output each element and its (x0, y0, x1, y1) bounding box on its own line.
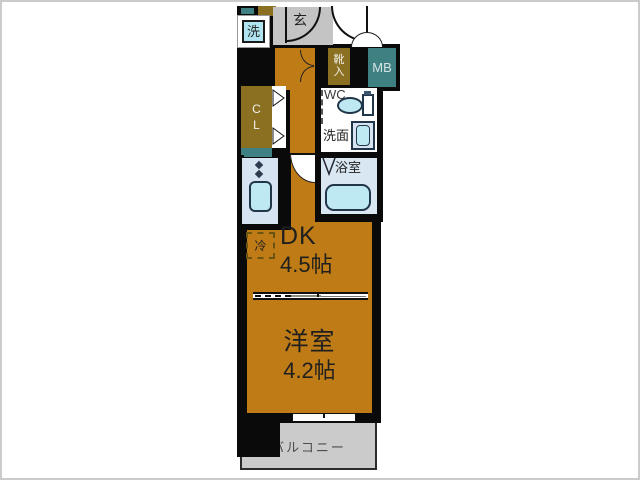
western-room-label: 洋室 4.2帖 (252, 330, 367, 382)
toilet-tank-icon (362, 94, 374, 116)
closet-label-top: C (252, 103, 261, 115)
refrigerator-space: 冷 (246, 232, 275, 259)
closet-door-strip (272, 86, 286, 148)
meter-door-arc-right-icon (367, 32, 383, 47)
vanity-sink-icon (356, 125, 370, 146)
bathtub-icon (325, 184, 371, 211)
sliding-door-dash-icon (255, 295, 291, 297)
sliding-door (253, 292, 368, 300)
shoe-cabinet-label-bottom: 入 (334, 67, 345, 78)
toilet-tank-lid-icon (364, 91, 371, 95)
meter-box: MB (368, 48, 396, 87)
closet: C L (241, 86, 272, 148)
shoe-cabinet: 靴 入 (328, 48, 350, 85)
meter-box-label: MB (372, 60, 392, 75)
shoe-cabinet-label-top: 靴 (334, 55, 345, 66)
dk-size: 4.5帖 (280, 254, 372, 276)
entrance-label: 玄 (293, 13, 307, 27)
balcony-window-tick-icon (323, 414, 325, 418)
dk-room-label: DK 4.5帖 (280, 224, 372, 276)
hallway-lower (290, 88, 315, 158)
wc-label: WC (324, 88, 346, 101)
pillar-bottom-left (237, 413, 280, 457)
western-room-name: 洋室 (252, 330, 367, 355)
closet-door-triangles-icon (272, 86, 286, 148)
kitchen-sink-icon (249, 181, 272, 212)
washstand-label: 洗面 (323, 129, 349, 142)
entrance-door-leaf-icon (285, 7, 287, 43)
sliding-door-rail-icon (321, 296, 366, 297)
kitchen-duct-strip (244, 151, 272, 157)
washing-machine-icon: 洗 (242, 20, 265, 43)
dk-name: DK (280, 224, 372, 249)
bathroom-label: 浴室 (335, 161, 361, 174)
wall-right (372, 214, 381, 423)
pipe-chip-teal (241, 8, 254, 14)
refrigerator-label: 冷 (254, 240, 266, 252)
sliding-door-tick-icon (317, 294, 319, 297)
closet-label-bottom: L (253, 119, 260, 131)
floorplan-image: 玄 洗 靴 入 MB C L WC 洗面 (0, 0, 640, 480)
western-room-size: 4.2帖 (252, 360, 367, 382)
washer-label: 洗 (247, 25, 260, 38)
balcony-window (292, 413, 356, 422)
